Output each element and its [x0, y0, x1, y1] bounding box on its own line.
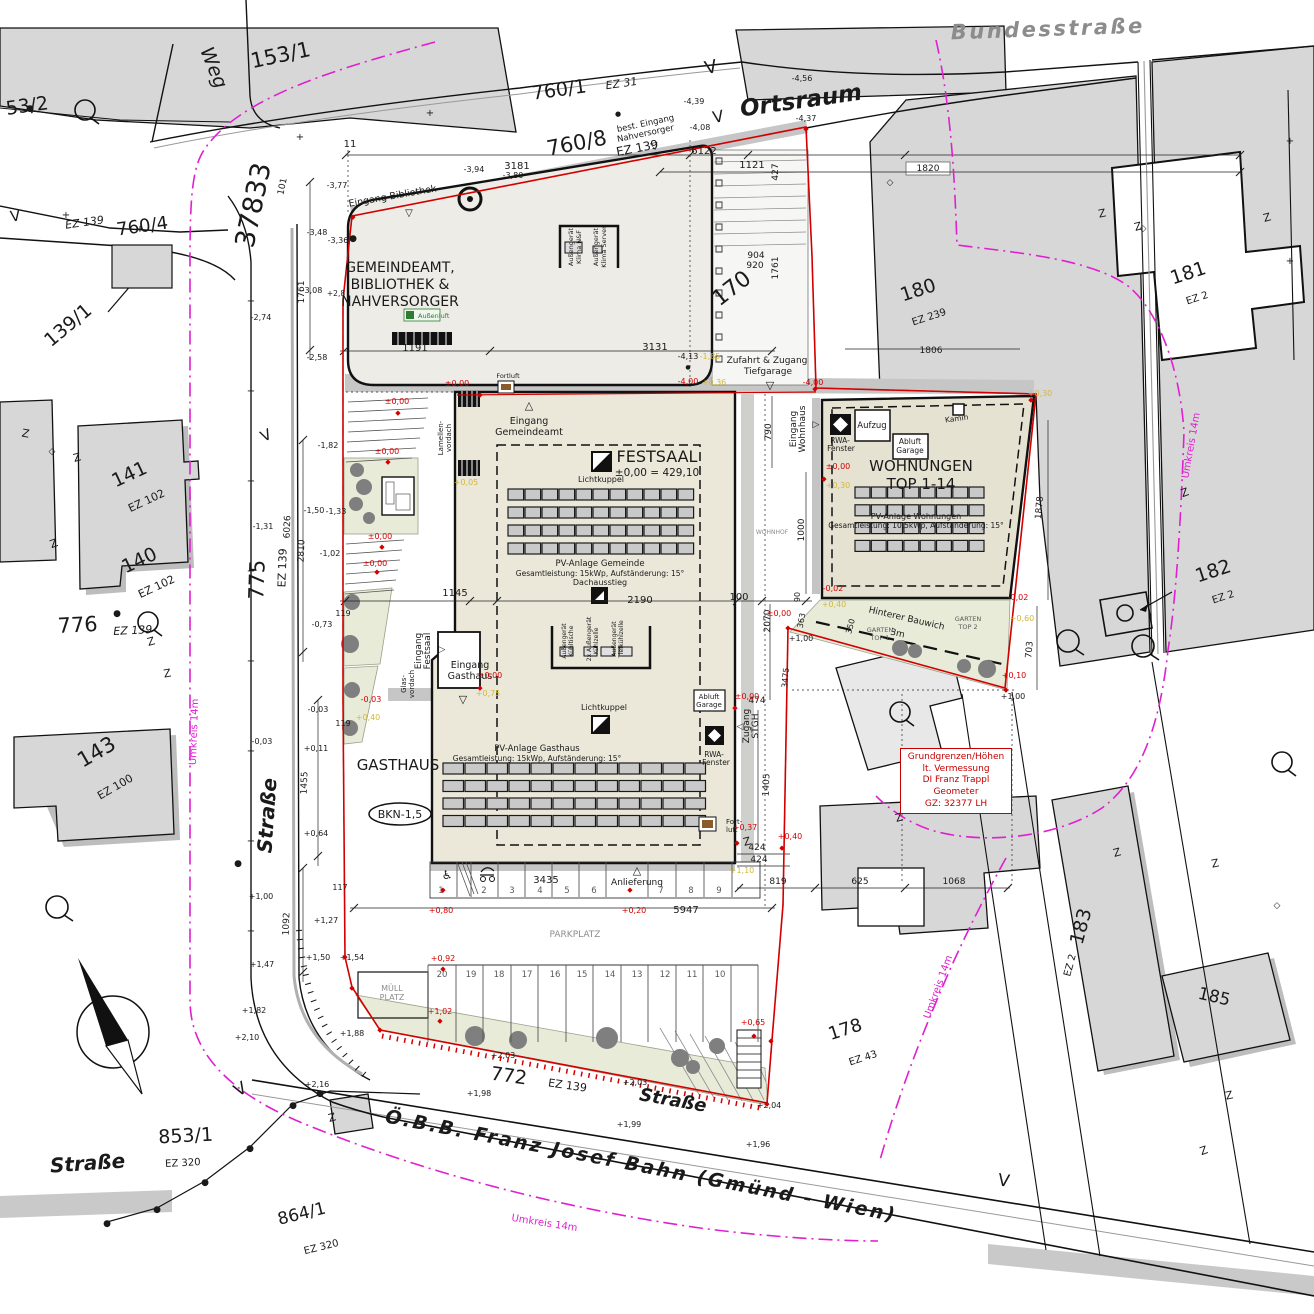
- street-bundesstrasse: Bundesstraße: [950, 14, 1145, 45]
- elev: +1,27: [314, 916, 339, 925]
- survey-pt-red: ◆: [627, 886, 633, 894]
- north-arrow: [77, 958, 149, 1094]
- pv-panel: [576, 507, 592, 518]
- pv-panel: [525, 543, 541, 554]
- pv-panel: [575, 763, 596, 774]
- pv-panel: [465, 798, 486, 809]
- ez-139-4: EZ 139: [275, 548, 289, 587]
- survey-pt-black: ●: [615, 110, 621, 118]
- survey-pt-red: ◆: [734, 839, 740, 847]
- dim: 424: [750, 855, 767, 865]
- survey-pt-black: ●: [349, 234, 357, 244]
- pv-panel: [531, 816, 552, 827]
- elev-red: +0,80: [429, 906, 454, 915]
- dim: 819: [769, 877, 786, 887]
- pv-panel: [509, 798, 530, 809]
- eingang-gemeindeamt-1: Eingang: [510, 416, 549, 427]
- sym-v: V: [9, 206, 22, 225]
- pv-panel: [610, 489, 626, 500]
- pv-panel: [641, 781, 662, 792]
- pv-panel: [661, 525, 677, 536]
- pv-panel: [663, 816, 684, 827]
- elev-red: +0,20: [622, 906, 647, 915]
- elev-yellow: +0,60: [1010, 614, 1035, 623]
- elev: -0,73: [312, 620, 333, 629]
- pv-panel: [443, 763, 464, 774]
- elev: -2,74: [251, 313, 272, 322]
- pv-panel: [644, 489, 660, 500]
- elev-red: -0,02: [823, 584, 844, 593]
- dim: 1878: [1034, 496, 1046, 520]
- stall: 9: [716, 886, 721, 896]
- survey-pt-red: ◆: [477, 391, 483, 399]
- pv-panel: [641, 763, 662, 774]
- elev-red: ±0,00: [375, 447, 400, 456]
- sym-v: V: [230, 1078, 250, 1101]
- pv-panel: [553, 781, 574, 792]
- pv-panel: [597, 816, 618, 827]
- pv-panel: [559, 489, 575, 500]
- pv-panel: [542, 489, 558, 500]
- building-left-edge: [0, 400, 56, 562]
- elev-red: +0,65: [741, 1018, 766, 1027]
- pv-panel: [644, 507, 660, 518]
- pv-panel: [597, 781, 618, 792]
- stall: 11: [687, 970, 698, 980]
- elev-yellow: +0,30: [826, 481, 851, 490]
- curb-west: [228, 196, 332, 1102]
- curb-cross: +: [296, 132, 304, 143]
- survey-pt-red: ◆: [732, 704, 738, 712]
- elev: -3,08: [302, 286, 323, 295]
- pv-wohnungen-1: PV-Anlage Wohnungen: [871, 512, 961, 521]
- stall: 8: [688, 886, 693, 896]
- pv-panel: [678, 507, 694, 518]
- pv-panel: [855, 505, 870, 516]
- dim: 790: [764, 423, 774, 440]
- dim: 625: [851, 877, 868, 887]
- pv-panel: [663, 763, 684, 774]
- festsaal-title: FESTSAAL: [617, 447, 698, 466]
- pv-panel: [531, 781, 552, 792]
- sym-z: Z: [146, 634, 157, 649]
- stall: 4: [537, 886, 542, 896]
- parcel-760-1: 760/1: [531, 75, 588, 104]
- pv-panel: [937, 540, 952, 551]
- elev: +1,88: [340, 1029, 365, 1038]
- pv-panel: [575, 781, 596, 792]
- elev-yellow: +0,40: [822, 600, 847, 609]
- dim: 119: [335, 609, 350, 618]
- curb-cross: +: [247, 836, 255, 847]
- survey-pt-black: ●: [153, 1205, 161, 1215]
- pv-panel: [509, 816, 530, 827]
- parcel-864-1: 864/1: [276, 1199, 328, 1230]
- ez-320-2: EZ 320: [303, 1238, 340, 1257]
- ez-139-5: EZ 139: [547, 1076, 587, 1094]
- parcel-776: 776: [57, 612, 98, 638]
- survey-pt-red: ◆: [821, 475, 827, 483]
- dim: 1806: [920, 346, 943, 356]
- survey-pt-red: ◆: [477, 684, 483, 692]
- stairs-icon: [737, 1030, 761, 1088]
- elev: -4,56: [792, 74, 813, 83]
- elev: -1,31: [253, 522, 274, 531]
- curb-cross: +: [247, 296, 255, 307]
- pv-panel: [661, 543, 677, 554]
- pv-panel: [443, 781, 464, 792]
- gemeindeamt-line2: BIBLIOTHEK &: [351, 277, 450, 293]
- elev: +1,82: [242, 1006, 267, 1015]
- pv-panel: [487, 816, 508, 827]
- road-band-se: [988, 1244, 1314, 1296]
- elev: -1,82: [318, 441, 339, 450]
- survey-pt-red: ◆: [440, 965, 446, 973]
- eingang-gemeindeamt-icon: △: [525, 399, 534, 412]
- garten-top2-a: GARTEN: [955, 615, 982, 623]
- survey-pt-red: ◆: [377, 1026, 383, 1034]
- elev: +0,64: [304, 829, 329, 838]
- sym-diamond: ◇: [49, 447, 56, 457]
- dim: 1121: [739, 160, 764, 171]
- elev: -4,39: [684, 97, 705, 106]
- elev-red: ±0,00: [385, 397, 410, 406]
- elev: +1,98: [467, 1089, 492, 1098]
- elev-red: +0,10: [1002, 671, 1027, 680]
- lichtkuppel-2: Lichtkuppel: [581, 703, 627, 712]
- pv-panel: [443, 816, 464, 827]
- eingang-festsaal-icon: ▷: [439, 645, 446, 655]
- survey-pt-black: ●: [246, 1144, 254, 1154]
- pv-panel: [855, 540, 870, 551]
- elev: +2,8: [327, 289, 345, 298]
- dim: 1405: [762, 773, 773, 796]
- dim: 119: [335, 719, 350, 728]
- curb-cross: +: [247, 386, 255, 397]
- stall: 18: [494, 970, 505, 980]
- fortluft-1: Fortluft: [496, 372, 520, 380]
- survey-pt-black: ●: [113, 609, 121, 619]
- pv-panel: [871, 487, 886, 498]
- survey-note-line2: lt. Vermessung: [902, 764, 1010, 776]
- kuehlzelle-1: 2x Außengerät: [586, 616, 593, 661]
- stall: 5: [564, 886, 569, 896]
- pv-panel: [641, 798, 662, 809]
- pv-panel: [575, 798, 596, 809]
- wheelchair-icon: ♿: [442, 868, 453, 882]
- pv-panel: [610, 507, 626, 518]
- dim: 3475: [780, 667, 791, 688]
- pv-panel: [542, 507, 558, 518]
- parcel-760-8: 760/8: [545, 126, 609, 161]
- eingang-wohnhaus-2: Wohnhaus: [798, 405, 808, 452]
- kuehltische-2: Kühltische: [568, 625, 575, 656]
- pv-panel: [487, 763, 508, 774]
- elev: -1,33: [326, 507, 347, 516]
- anlieferung-icon: △: [633, 864, 642, 877]
- elev: -4,08: [690, 123, 711, 132]
- pv-panel: [553, 816, 574, 827]
- stroller-wheel-1: [481, 877, 486, 882]
- elev: -3,77: [327, 181, 348, 190]
- pv-panel: [969, 505, 984, 516]
- klima-server-2: Klima Server: [600, 226, 608, 268]
- elev: -1,02: [320, 549, 341, 558]
- elev: -3,80: [503, 171, 524, 180]
- elev: -0,03: [252, 737, 273, 746]
- eingang-gasthaus-icon: ▽: [459, 693, 468, 706]
- pv-panel: [663, 798, 684, 809]
- survey-pt-red: ◆: [803, 125, 809, 133]
- dim: 3131: [642, 342, 667, 353]
- pv-panel: [855, 487, 870, 498]
- tiefkuehlzelle-1: Außengerät: [611, 621, 618, 657]
- pv-gasthaus-2: Gesamtleistung: 15kWp, Aufständerung: 15…: [453, 754, 622, 763]
- elev-red: ±0,00: [735, 692, 760, 701]
- point-101: 101: [276, 177, 289, 196]
- pv-panel: [531, 763, 552, 774]
- dachausstieg: Dachausstieg: [573, 578, 627, 587]
- dim: 904: [747, 251, 764, 261]
- survey-pt-black: ●: [201, 1178, 209, 1188]
- dim: 2810: [297, 539, 308, 563]
- pv-panel: [597, 763, 618, 774]
- dim: 6122: [691, 146, 716, 157]
- pv-panel: [465, 781, 486, 792]
- pv-panel: [525, 489, 541, 500]
- fortluft-box-2-core: [702, 820, 713, 828]
- ez-31: EZ 31: [605, 75, 638, 92]
- zugang-stgh-2: STGH: [751, 714, 761, 739]
- elev-red: ±0,00: [445, 379, 470, 388]
- klima-server-1: Außengerät: [592, 227, 600, 266]
- pv-panel: [509, 763, 530, 774]
- railway-name: Ö.B.B. Franz Josef Bahn (Gmünd - Wien): [383, 1104, 899, 1227]
- dim: 1068: [943, 877, 966, 887]
- elev-yellow: -1,85: [700, 352, 721, 361]
- sym-v: V: [703, 56, 720, 79]
- building-760-4: [112, 245, 172, 288]
- curb-cross: +: [1286, 256, 1294, 267]
- building-178-area: [820, 796, 1040, 934]
- kuehltische-1: Außengerät: [561, 623, 568, 659]
- sym-v: V: [997, 1170, 1012, 1191]
- stall: 14: [605, 970, 616, 980]
- pv-panel: [593, 525, 609, 536]
- zufahrt-icon: ▽: [766, 379, 775, 392]
- aufzug: Aufzug: [857, 421, 886, 431]
- abluft-garage-2b: Garage: [696, 701, 722, 709]
- dim: 1455: [300, 771, 311, 794]
- playground-house: [382, 477, 414, 515]
- site-plan-drawing: 153/153/2Weg760/1EZ 31760/8EZ 139Ortsrau…: [0, 0, 1314, 1314]
- gasthaus-title: GASTHAUS: [357, 756, 440, 774]
- elev: -3,94: [464, 165, 485, 174]
- survey-note-line1: Grundgrenzen/Höhen: [902, 752, 1010, 764]
- pv-panel: [542, 543, 558, 554]
- rail-top: [252, 1080, 1314, 1252]
- elev-red: +0,37: [733, 823, 758, 832]
- survey-note-box: Grundgrenzen/Höhen lt. Vermessung DI Fra…: [900, 748, 1012, 814]
- lichtkuppel-1: Lichtkuppel: [578, 475, 624, 484]
- survey-pt-black: ●: [26, 104, 34, 114]
- dim: 6026: [283, 515, 294, 539]
- wohnungen-2: TOP 1-14: [886, 475, 956, 493]
- curb-cross: +: [247, 926, 255, 937]
- elev: -4,13: [678, 352, 699, 361]
- aussenluft-chip: Außenluft: [418, 312, 450, 320]
- ez-2-3: EZ 2: [1062, 953, 1079, 978]
- gemeindeamt-line1: GEMEINDEAMT,: [345, 260, 455, 276]
- lamellenvordach-1: Lamellen-: [437, 420, 445, 455]
- survey-pt-red: ◆: [812, 385, 818, 393]
- pv-panel: [685, 798, 706, 809]
- curb-cross: +: [1286, 136, 1294, 147]
- pv-panel: [627, 543, 643, 554]
- survey-pt-red: ◆: [440, 886, 446, 894]
- pv-panel: [559, 507, 575, 518]
- survey-pt-red: ◆: [768, 1037, 774, 1045]
- gemeindeamt-line3: NAHVERSORGER: [341, 294, 459, 310]
- ez-320: EZ 320: [165, 1157, 201, 1170]
- elev: +2,16: [305, 1080, 330, 1089]
- pv-panel: [487, 781, 508, 792]
- pv-panel: [871, 540, 886, 551]
- survey-pt-red: ◆: [751, 1032, 757, 1040]
- dim: 1092: [282, 912, 293, 935]
- sym-z: Z: [1210, 856, 1221, 870]
- sym-diamond: ◇: [887, 178, 894, 188]
- dim: 117: [332, 883, 347, 892]
- survey-pt-red: ◆: [342, 953, 348, 961]
- elev-yellow: +0,36: [702, 378, 727, 387]
- survey-pt-red: ◆: [395, 409, 401, 417]
- elev: +1,00: [249, 892, 274, 901]
- abluft-garage-2a: Abluft: [699, 693, 720, 701]
- kuehlzelle-2: Kühlzelle: [593, 627, 600, 654]
- site-plan-canvas: 153/153/2Weg760/1EZ 31760/8EZ 139Ortsrau…: [0, 0, 1314, 1314]
- survey-pt-red: ◆: [349, 984, 355, 992]
- eingang-bibliothek-icon: ▽: [405, 208, 413, 219]
- stall: 12: [660, 970, 671, 980]
- survey-pt-black: ●: [234, 859, 242, 869]
- pv-panel: [525, 507, 541, 518]
- parcel-853-1: 853/1: [158, 1124, 214, 1149]
- pv-panel: [619, 816, 640, 827]
- elev-red: -0,02: [1008, 593, 1029, 602]
- pv-panel: [644, 543, 660, 554]
- stroller-wheel-2: [490, 877, 495, 882]
- pv-panel: [678, 489, 694, 500]
- pv-panel: [661, 489, 677, 500]
- pv-panel: [678, 525, 694, 536]
- klima-nf-2: Klima N&F: [575, 230, 583, 264]
- pv-panel: [559, 543, 575, 554]
- eingang-gemeindeamt-2: Gemeindeamt: [495, 427, 563, 438]
- pv-panel: [627, 489, 643, 500]
- pv-panel: [443, 798, 464, 809]
- abluft-garage-1a: Abluft: [899, 437, 921, 446]
- elev-yellow: +0,05: [454, 478, 479, 487]
- pv-panel: [509, 781, 530, 792]
- sym-z: Z: [1224, 1088, 1235, 1102]
- ez-43: EZ 43: [848, 1049, 879, 1068]
- street-strasse-west: Straße: [252, 777, 281, 854]
- pv-panel: [920, 540, 935, 551]
- pv-panel: [559, 525, 575, 536]
- dim: 11: [344, 139, 357, 150]
- dim: 2190: [627, 595, 652, 606]
- building-rail-hut: [330, 1094, 373, 1134]
- pv-panel: [969, 540, 984, 551]
- bkn: BKN-1,5: [378, 808, 422, 821]
- stall: 13: [632, 970, 643, 980]
- survey-pt-red: ◆: [779, 844, 785, 852]
- dim: 3435: [533, 875, 558, 886]
- elev: -2,58: [307, 353, 328, 362]
- pv-panel: [888, 540, 903, 551]
- pv-panel: [553, 763, 574, 774]
- pv-panel: [610, 525, 626, 536]
- parcel-178: 178: [826, 1014, 865, 1045]
- stall: 15: [577, 970, 588, 980]
- elev: -3,48: [307, 228, 328, 237]
- sym-v: V: [711, 106, 725, 127]
- pv-panel: [953, 540, 968, 551]
- dim: 100: [729, 592, 748, 603]
- elev-red: +0,40: [778, 832, 803, 841]
- eingang-gasthaus-1: Eingang: [451, 660, 490, 671]
- pv-panel: [904, 540, 919, 551]
- zugang-stgh-icon: ◁: [737, 722, 744, 732]
- fortluft-box-1-core: [501, 384, 511, 390]
- eingang-festsaal-2: Festsaal: [423, 633, 433, 670]
- pv-panel: [525, 525, 541, 536]
- survey-pt-red: ◆: [437, 1017, 443, 1025]
- dim: 1145: [442, 588, 467, 599]
- survey-pt-red: ◆: [385, 458, 391, 466]
- lamellenvordach-2: vordach: [445, 424, 453, 452]
- stall: 17: [522, 970, 533, 980]
- pv-panel: [508, 525, 524, 536]
- zufahrt-1: Zufahrt & Zugang: [727, 356, 808, 366]
- sym-v: V: [257, 425, 275, 446]
- survey-pt-red: ◆: [374, 568, 380, 576]
- curb-cross: +: [247, 656, 255, 667]
- pv-panel: [644, 525, 660, 536]
- muellplatz-2: PLATZ: [380, 993, 405, 1002]
- stall: 6: [591, 886, 596, 896]
- festsaal-elev: ±0,00 = 429,10: [615, 467, 699, 479]
- elev: +2,03: [491, 1051, 516, 1060]
- point-37833: 37833: [230, 160, 278, 250]
- tiefkuehlzelle-2: Tiefkühlzelle: [618, 620, 625, 659]
- survey-note-line3: DI Franz Trappl Geometer: [902, 775, 1010, 798]
- umkreis-left: Umkreis 14m: [188, 698, 201, 765]
- sym-z: Z: [163, 666, 173, 680]
- zufahrt-2: Tiefgarage: [743, 367, 793, 377]
- ez-139-2: EZ 139: [64, 213, 104, 231]
- parkplatz: PARKPLATZ: [550, 930, 601, 940]
- pv-panel: [619, 781, 640, 792]
- abluft-garage-1b: Garage: [896, 446, 924, 455]
- corridor-band: [741, 394, 754, 862]
- elev: -1,50: [304, 506, 325, 515]
- klima-nf-1: Außengerät: [567, 227, 575, 266]
- survey-pt-red: ◆: [350, 213, 356, 221]
- survey-pt-black: ●: [316, 1089, 324, 1099]
- elev: +2,10: [235, 1033, 260, 1042]
